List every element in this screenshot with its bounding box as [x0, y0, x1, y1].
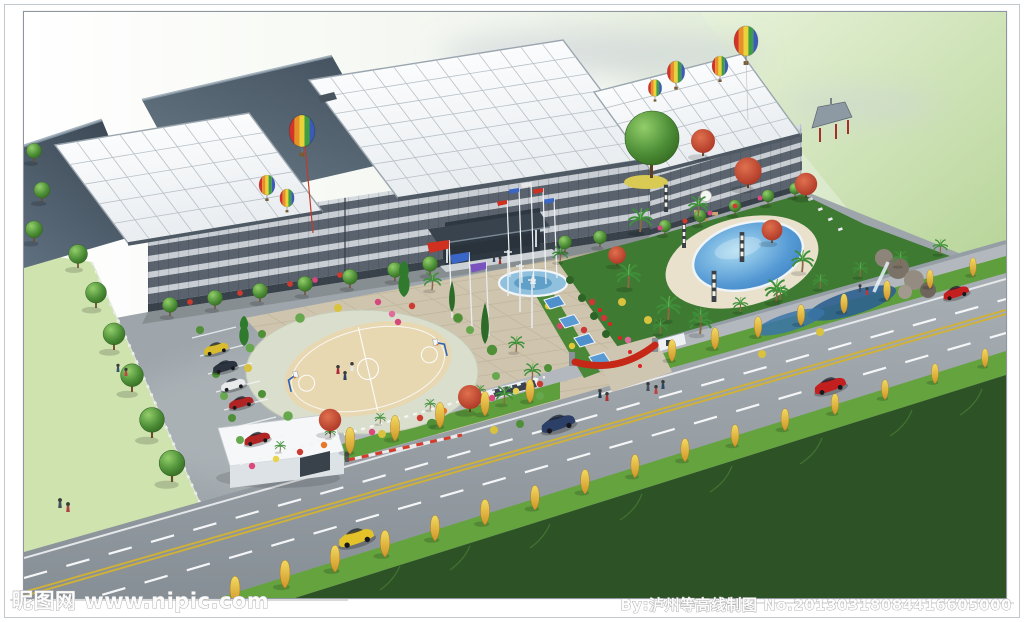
flower — [321, 442, 327, 448]
lamp-pillar — [712, 271, 717, 302]
big-tree — [625, 111, 679, 165]
flower — [489, 395, 495, 401]
lamp-pillar — [682, 222, 686, 248]
campus-rendering: 昵图网 www.nipic.com By:泸州等高线制图 No.20130318… — [0, 0, 1024, 622]
flower — [537, 381, 543, 387]
flower — [513, 388, 519, 394]
parasol — [701, 191, 712, 202]
lamp-pillar — [664, 185, 668, 212]
flower — [273, 456, 279, 462]
flower-ring — [624, 175, 668, 189]
flower — [297, 449, 303, 455]
flower — [369, 429, 375, 435]
cloud — [780, 87, 940, 123]
rendering-canvas: 昵图网 www.nipic.com By:泸州等高线制图 No.20130318… — [0, 0, 1024, 622]
flower — [569, 343, 575, 349]
flower — [417, 415, 423, 421]
watermark-site: 昵图网 www.nipic.com — [12, 589, 269, 613]
flower — [249, 463, 255, 469]
watermark-credit: By:泸州等高线制图 No.20130318084416605000 — [620, 596, 1012, 614]
lamp-pillar — [740, 232, 745, 262]
